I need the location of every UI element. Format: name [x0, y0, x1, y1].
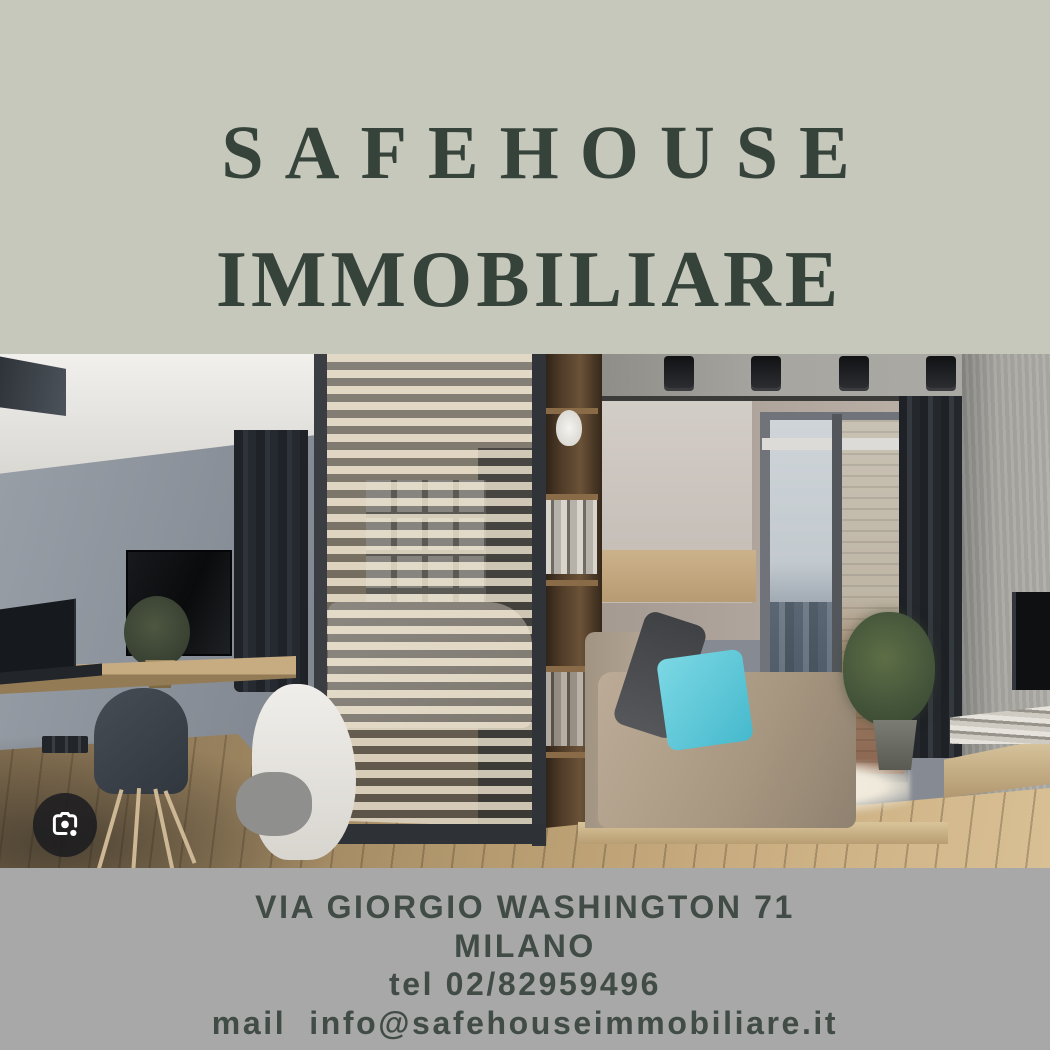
city-line: MILANO: [0, 927, 1050, 966]
white-vase: [556, 410, 582, 446]
divider-frame-base: [314, 824, 546, 844]
ceiling-spotlight: [839, 356, 869, 388]
email-line: mail info@safehouseimmobiliare.it: [0, 1004, 1050, 1043]
shelf-books: [545, 500, 597, 574]
brand-title-line-2: IMMOBILIARE: [0, 240, 1050, 320]
right-wall-tv: [1012, 592, 1050, 690]
phone-line: tel 02/82959496: [0, 965, 1050, 1004]
middle-dark-curtain: [234, 430, 308, 692]
contact-block: VIA GIORGIO WASHINGTON 71 MILANO tel 02/…: [0, 888, 1050, 1042]
google-lens-button[interactable]: [33, 793, 97, 857]
ceiling-spotlight: [664, 356, 694, 388]
wall-socket: [42, 736, 88, 753]
apartment-photo: [0, 354, 1050, 868]
real-estate-flyer: SAFEHOUSE IMMOBILIARE: [0, 0, 1050, 1050]
desk-plant: [124, 596, 190, 668]
shelf-plank: [544, 580, 598, 586]
divider-frame-post: [532, 354, 546, 846]
google-lens-icon: [48, 808, 82, 842]
address-line: VIA GIORGIO WASHINGTON 71: [0, 888, 1050, 927]
gray-floor-cushion: [236, 772, 312, 836]
ceiling-spotlight: [751, 356, 781, 388]
brand-title-line-1: SAFEHOUSE: [0, 115, 1050, 191]
desk-chair: [94, 688, 188, 794]
turquoise-pillow: [656, 648, 754, 751]
wood-headboard-strip: [584, 550, 756, 602]
ceiling-spotlight: [926, 356, 956, 388]
balcony-plant: [843, 612, 935, 726]
